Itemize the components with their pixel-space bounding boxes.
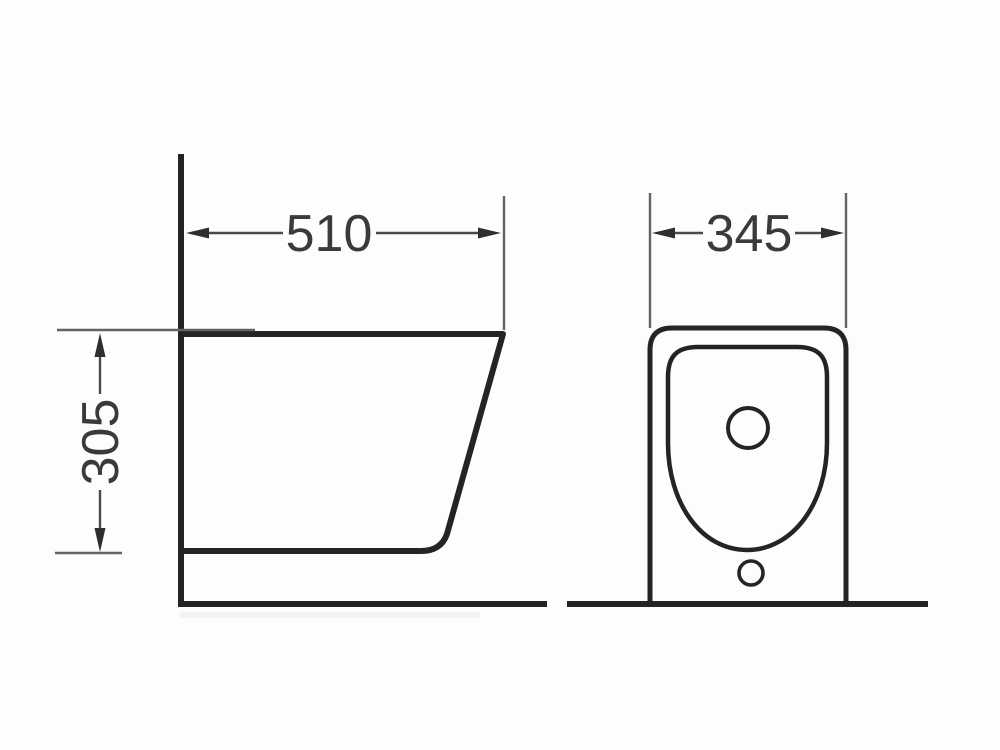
drawing-linework [0, 0, 1000, 750]
drain-hole-circle [728, 408, 768, 448]
technical-drawing: 510 305 345 [0, 0, 1000, 750]
side-profile-outline [181, 334, 503, 551]
arrowhead-left-icon [652, 228, 675, 239]
side-width-dimension-label: 510 [286, 208, 373, 260]
front-body-outline [650, 328, 846, 606]
fixing-hole-circle [739, 561, 763, 585]
side-height-dimension-label: 305 [75, 399, 127, 486]
arrowhead-right-icon [478, 228, 501, 239]
arrowhead-left-icon [186, 228, 209, 239]
floor-shadow [180, 612, 480, 618]
front-width-dimension-label: 345 [706, 208, 793, 260]
arrowhead-right-icon [821, 228, 844, 239]
arrowhead-down-icon [95, 528, 106, 552]
arrowhead-up-icon [95, 333, 106, 357]
